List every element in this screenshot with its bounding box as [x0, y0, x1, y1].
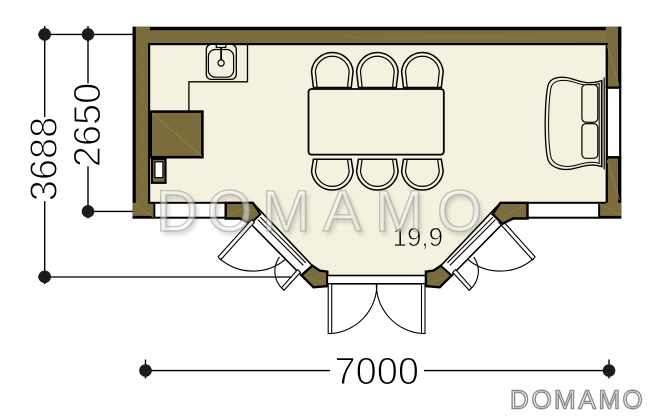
svg-text:2650: 2650 [67, 83, 109, 168]
svg-text:7000: 7000 [335, 351, 420, 393]
svg-text:3688: 3688 [24, 117, 66, 202]
